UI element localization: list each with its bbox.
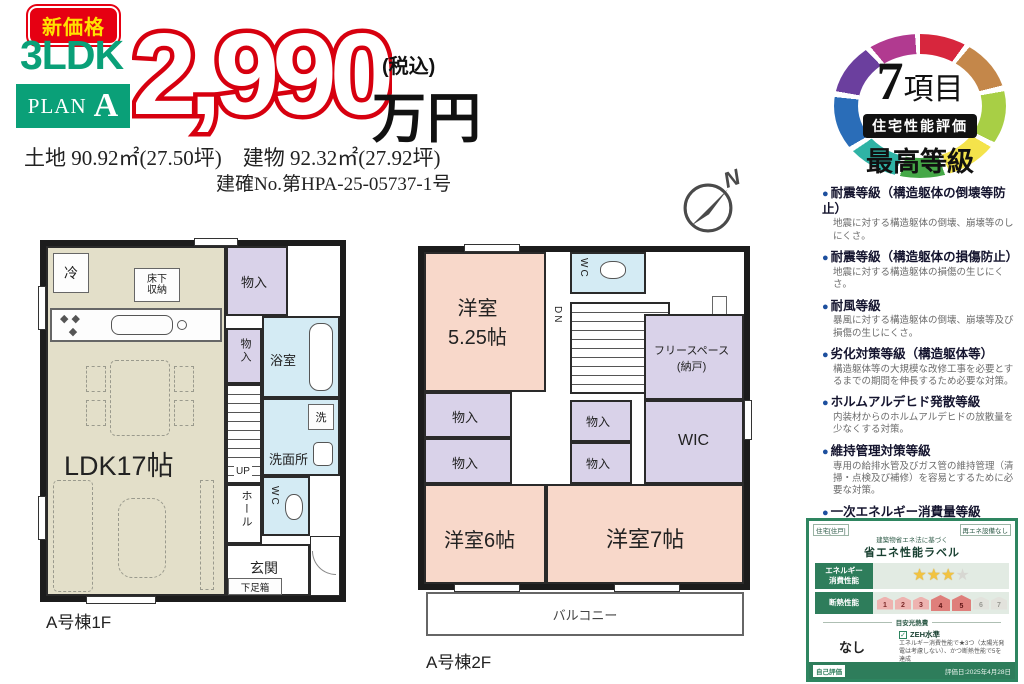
zeh-note: エネルギー消費性能で★3つ（太陽光発電は考慮しない）、かつ断熱性能で5を達成 — [899, 641, 1007, 664]
underfloor-label-2: 収納 — [147, 285, 167, 297]
performance-item-desc: 構造躯体等の大規模な改修工事を必要とするまでの期間を伸長するため必要な対策。 — [822, 364, 1020, 389]
bathroom-label: 浴室 — [270, 350, 296, 369]
stairs-1f: UP — [226, 384, 262, 484]
bullet-icon: ● — [822, 349, 829, 361]
door-arc — [312, 551, 336, 575]
star-filled-icon: ★ — [927, 568, 941, 584]
bullet-icon: ● — [822, 301, 829, 313]
underfloor-storage: 床下 収納 — [134, 268, 180, 302]
stairs-up-label: UP — [234, 466, 252, 477]
closet-1f-a: 物入 — [226, 246, 288, 316]
performance-item-title: 耐風等級 — [831, 299, 881, 313]
bullet-icon: ● — [822, 397, 829, 409]
performance-item-title: 維持管理対策等級 — [831, 444, 931, 458]
ring-count: 7項目 — [877, 50, 964, 112]
room-6-label: 洋室6帖 — [444, 524, 515, 553]
window — [38, 496, 46, 540]
compass-icon — [682, 182, 734, 234]
zeh-checkbox-icon: ✓ — [899, 631, 907, 639]
land-building-area: 土地 90.92㎡(27.50坪) 建物 92.32㎡(27.92坪) — [24, 142, 440, 172]
performance-item-title: 耐震等級（構造躯体の損傷防止） — [831, 250, 1019, 264]
kitchen-counter: ◆◆ ◆ — [50, 308, 222, 342]
zeh-label: ZEH水準 — [910, 629, 940, 640]
closet-label: 物入 — [452, 407, 478, 426]
room-525-label: 洋室 5.25帖 — [448, 292, 507, 350]
room-ldk: 冷 床下 収納 ◆◆ ◆ LDK17帖 — [46, 246, 226, 596]
closet-2f-b: 物入 — [424, 438, 512, 484]
performance-item-title: 一次エネルギー消費量等級 — [831, 505, 981, 519]
energy-consumption-label: エネルギー 消費性能 — [815, 563, 873, 589]
wc-1f: WC — [262, 476, 310, 536]
closet-2f-a: 物入 — [424, 392, 512, 438]
ring-label: 住宅性能評価 — [863, 114, 977, 138]
insulation-level-6: 6 — [973, 597, 989, 610]
plan-letter: A — [94, 87, 119, 125]
ring-count-number: 7 — [877, 51, 904, 111]
dining-table — [110, 360, 170, 436]
insulation-label: 断熱性能 — [815, 592, 873, 614]
free-space-label: フリースペース (納戸) — [654, 342, 729, 374]
tv-board — [200, 480, 214, 590]
insulation-level-2: 2 — [895, 597, 911, 610]
energy-consumption-label-1: エネルギー — [825, 566, 863, 576]
window — [194, 238, 238, 246]
performance-item: ●耐震等級（構造躯体の損傷防止） 地震に対する構造躯体の損傷の生じにくさ。 — [822, 250, 1020, 291]
dining-chair — [86, 400, 106, 426]
stairs-dn-label: DN — [552, 306, 563, 324]
entrance-label: 玄関 — [250, 558, 278, 578]
star-empty-icon: ★ — [955, 568, 969, 584]
energy-label-title: 省エネ性能ラベル — [809, 544, 1015, 560]
estimate-divider: 目安光熱費 — [823, 617, 1001, 627]
closet-2f-d: 物入 — [570, 442, 632, 484]
energy-label-card: 住宅[住戸] 再エネ設備なし 建築物省エネ法に基づく 省エネ性能ラベル エネルギ… — [806, 518, 1018, 682]
toilet-icon — [285, 494, 303, 520]
window — [744, 400, 752, 440]
washing-machine-label: 洗 — [316, 409, 327, 425]
insulation-row: 1234567 — [873, 595, 1009, 611]
insulation-performance-row: 断熱性能 1234567 — [815, 592, 1009, 614]
floor1-caption: A号棟1F — [46, 608, 111, 633]
layout-type: 3LDK — [20, 32, 123, 79]
insulation-level-7: 7 — [991, 597, 1007, 610]
closet-label: 物入 — [452, 453, 478, 472]
plan-badge: PLAN A — [16, 84, 130, 128]
free-space: フリースペース (納戸) — [644, 314, 744, 400]
stars-row: ★★★★ — [873, 568, 1009, 584]
performance-item: ●耐震等級（構造躯体の倒壊等防止） 地震に対する構造躯体の倒壊、崩壊等のしにくさ… — [822, 186, 1020, 243]
insulation-level-5: 5 — [952, 595, 971, 611]
stove-icon: ◆◆ ◆ — [60, 312, 83, 338]
energy-label-footer: 自己評価 評価日:2025年4月28日 — [809, 662, 1015, 679]
washroom: 洗 洗面所 — [262, 398, 340, 476]
performance-item-desc: 地震に対する構造躯体の倒壊、崩壊等のしにくさ。 — [822, 218, 1020, 243]
price-figure: 2,990 — [132, 2, 392, 140]
fridge-label: 冷 — [64, 263, 78, 283]
floorplan-1f: 冷 床下 収納 ◆◆ ◆ LDK17帖 — [40, 240, 346, 602]
performance-item: ●劣化対策等級（構造躯体等） 構造躯体等の大規模な改修工事を必要とするまでの期間… — [822, 347, 1020, 388]
wc-2f: WC — [570, 252, 646, 294]
performance-item: ●耐風等級 暴風に対する構造躯体の倒壊、崩壊等及び損傷の生じにくさ。 — [822, 299, 1020, 340]
closet-label: 物入 — [586, 413, 610, 430]
star-filled-icon: ★ — [941, 568, 955, 584]
evaluation-date: 評価日:2025年4月28日 — [945, 666, 1011, 676]
dwelling-type-chip: 住宅[住戸] — [813, 524, 849, 536]
shoe-box-label: 下足箱 — [241, 580, 270, 594]
performance-ring-badge: 7項目 住宅性能評価 最高等級 — [834, 34, 1006, 178]
bullet-icon: ● — [822, 507, 829, 519]
performance-item-desc: 地震に対する構造躯体の損傷の生じにくさ。 — [822, 267, 1020, 292]
building-confirmation-number: 建確No.第HPA-25-05737-1号 — [216, 169, 451, 196]
closet-2f-c: 物入 — [570, 400, 632, 442]
renewable-chip: 再エネ設備なし — [960, 524, 1012, 536]
performance-item: ●ホルムアルデヒド発散等級 内装材からのホルムアルデヒドの放散量を少なくする対策… — [822, 395, 1020, 436]
energy-label-titles: 建築物省エネ法に基づく 省エネ性能ラベル — [809, 534, 1015, 560]
washroom-label: 洗面所 — [269, 449, 308, 468]
performance-item-desc: 専用の給排水管及びガス管の維持管理（清掃・点検及び補修）を容易とするために必要な… — [822, 461, 1020, 498]
porch — [310, 536, 340, 596]
window — [86, 596, 156, 604]
balcony-label: バルコニー — [553, 605, 618, 624]
closet-label: 物入 — [237, 338, 253, 364]
performance-item-desc: 暴風に対する構造躯体の倒壊、崩壊等及び損傷の生じにくさ。 — [822, 315, 1020, 340]
wic-label: WIC — [678, 432, 709, 450]
closet-label: 物入 — [241, 272, 267, 291]
window — [38, 286, 46, 330]
performance-item-title: ホルムアルデヒド発散等級 — [831, 395, 981, 409]
fridge-box: 冷 — [53, 253, 89, 293]
estimate-label: 目安光熱費 — [896, 617, 929, 627]
bathtub-icon — [309, 323, 333, 391]
price-value: 2,990 — [132, 9, 390, 139]
floorplan-2f: 洋室 5.25帖 物入 物入 洋室6帖 WC DN 棚 フリースペース (納戸) — [418, 246, 750, 590]
ring-count-suffix: 項目 — [904, 73, 964, 106]
insulation-level-4: 4 — [931, 595, 950, 611]
dining-chair — [174, 400, 194, 426]
hall-1f: ホール — [226, 484, 262, 544]
zeh-block: ✓ ZEH水準 エネルギー消費性能で★3つ（太陽光発電は考慮しない）、かつ断熱性… — [899, 629, 1007, 664]
free-space-label-1: フリースペース — [654, 342, 729, 358]
energy-consumption-row: エネルギー 消費性能 ★★★★ — [815, 563, 1009, 589]
energy-consumption-label-2: 消費性能 — [825, 576, 863, 586]
wc-label: WC — [578, 258, 589, 279]
bullet-icon: ● — [822, 188, 829, 200]
window — [614, 584, 680, 592]
closet-1f-b: 物入 — [226, 328, 262, 384]
plan-word: PLAN — [28, 94, 87, 119]
performance-item: ●維持管理対策等級 専用の給排水管及びガス管の維持管理（清掃・点検及び補修）を容… — [822, 444, 1020, 498]
estimate-value: なし — [839, 637, 865, 664]
performance-list: ●耐震等級（構造躯体の倒壊等防止） 地震に対する構造躯体の倒壊、崩壊等のしにくさ… — [822, 186, 1020, 553]
window — [464, 244, 520, 252]
sink-basin-icon — [313, 442, 333, 466]
ring-grade: 最高等級 — [866, 140, 974, 179]
performance-item-title: 耐震等級（構造躯体の倒壊等防止） — [822, 186, 1006, 216]
performance-item-title: 劣化対策等級（構造躯体等） — [831, 347, 994, 361]
wic: WIC — [644, 400, 744, 484]
room-525: 洋室 5.25帖 — [424, 252, 546, 392]
room-6: 洋室6帖 — [424, 484, 546, 584]
room-7: 洋室7帖 — [546, 484, 744, 584]
underfloor-label-1: 床下 — [147, 274, 167, 286]
performance-item-desc: 内装材からのホルムアルデヒドの放散量を少なくする対策。 — [822, 412, 1020, 437]
room-525-label-1: 洋室 — [448, 292, 507, 321]
room-525-label-2: 5.25帖 — [448, 321, 507, 350]
insulation-level-1: 1 — [877, 597, 893, 610]
bullet-icon: ● — [822, 446, 829, 458]
shoe-box: 下足箱 — [228, 578, 282, 595]
dining-chair — [86, 366, 106, 392]
wc-label: WC — [269, 486, 280, 507]
living-table — [118, 498, 166, 578]
insulation-level-3: 3 — [913, 597, 929, 610]
bathroom: 浴室 — [262, 316, 340, 398]
bullet-icon: ● — [822, 252, 829, 264]
washing-machine: 洗 — [308, 404, 334, 430]
sofa — [53, 480, 93, 592]
faucet-icon — [177, 320, 187, 330]
ldk-label: LDK17帖 — [64, 444, 174, 483]
toilet-icon — [600, 261, 626, 279]
free-space-label-2: (納戸) — [654, 358, 729, 374]
star-filled-icon: ★ — [912, 568, 926, 584]
ring-text: 7項目 住宅性能評価 最高等級 — [834, 42, 1006, 186]
window — [454, 584, 520, 592]
balcony: バルコニー — [426, 592, 744, 636]
room-7-label: 洋室7帖 — [606, 522, 684, 554]
self-evaluation-chip: 自己評価 — [813, 665, 845, 677]
flyer-page: 新価格 3LDK PLAN A 2,990 (税込) 万円 土地 90.92㎡(… — [0, 0, 1024, 684]
floor2-caption: A号棟2F — [426, 648, 491, 673]
estimate-body: なし ✓ ZEH水準 エネルギー消費性能で★3つ（太陽光発電は考慮しない）、かつ… — [817, 629, 1007, 664]
closet-label: 物入 — [586, 455, 610, 472]
dining-chair — [174, 366, 194, 392]
sink-icon — [111, 315, 173, 335]
hall-label: ホール — [238, 490, 254, 529]
